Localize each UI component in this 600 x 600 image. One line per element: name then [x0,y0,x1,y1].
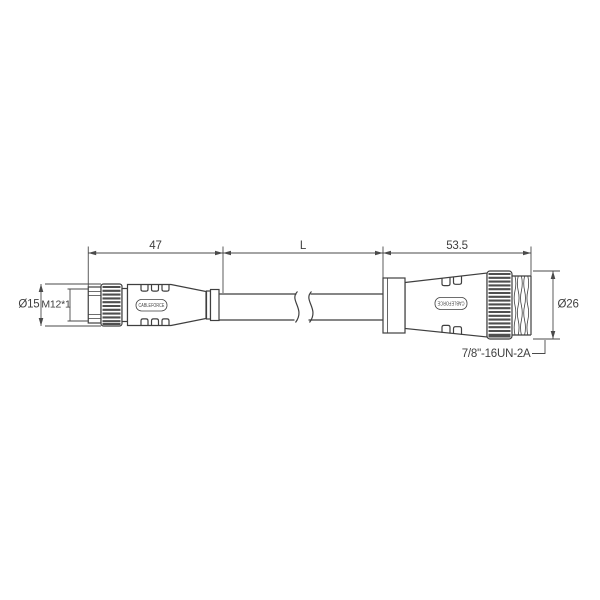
cable [219,292,383,323]
leader-line [532,340,545,354]
right-thread-line [514,276,516,335]
arrowhead [223,251,231,256]
right-diameter-dimension: Ø26 [533,271,579,339]
arrowhead [551,271,556,279]
arrowhead [39,318,44,326]
arrowhead [523,251,531,256]
left-collar-band [211,290,220,321]
right-back-cap [383,278,405,333]
left-connector: CABLEFORCE [88,284,219,326]
left-collar-ring [207,291,211,319]
cable-break-curve-left [295,292,299,323]
right-thread-callout: 7/8"-16UN-2A [462,340,545,360]
left-brand-text: CABLEFORCE [139,303,165,309]
left-thread-dimension: M12*1 [41,289,88,321]
arrowhead [215,251,223,256]
right-thread-line [521,276,523,335]
thread-callout-label: 7/8"-16UN-2A [462,348,531,360]
extension-lines [533,271,560,339]
cable-break-curve-right [309,292,313,323]
right-brand-text: CABLEFORCE [437,299,464,305]
right-connector: CABLEFORCE [383,271,531,339]
arrowhead [39,284,44,292]
arrowhead [551,331,556,339]
arrowhead [383,251,391,256]
arrowhead [375,251,383,256]
left-thread-stub [88,287,101,323]
dim-L-label: L [300,240,307,252]
extension-lines [70,289,88,321]
dim-47-label: 47 [149,240,161,252]
left-step-ring [122,289,128,322]
arrowhead [88,251,96,256]
right-thread-line [527,276,529,335]
dim-d15-label: Ø15 [18,299,39,311]
drawing-page: 47 L 53.5 CABLEFORCE Ø15 M12* [0,0,600,600]
right-thread-line [524,276,526,335]
technical-drawing-canvas: 47 L 53.5 CABLEFORCE Ø15 M12* [0,0,600,600]
dim-d26-label: Ø26 [558,299,579,311]
right-thread-line [517,276,519,335]
dim-53-5-label: 53.5 [446,240,468,252]
dim-m12-label: M12*1 [41,299,71,311]
